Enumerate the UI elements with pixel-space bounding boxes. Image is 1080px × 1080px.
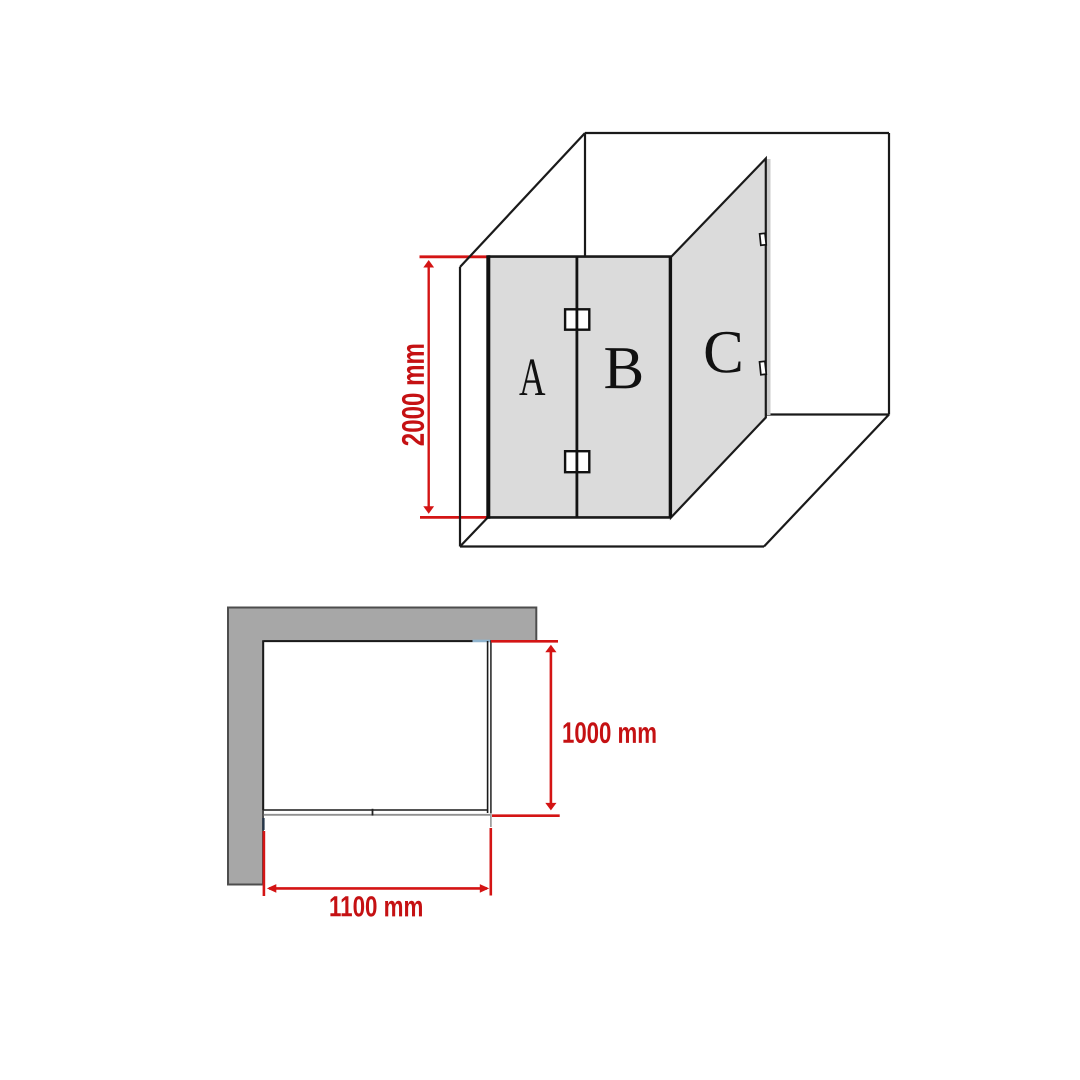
svg-text:2000 mm: 2000 mm [396, 343, 431, 446]
svg-text:1000 mm: 1000 mm [562, 716, 657, 750]
svg-text:B: B [603, 335, 644, 402]
svg-text:A: A [519, 347, 546, 407]
svg-text:1100 mm: 1100 mm [329, 892, 423, 923]
svg-text:C: C [703, 319, 744, 386]
